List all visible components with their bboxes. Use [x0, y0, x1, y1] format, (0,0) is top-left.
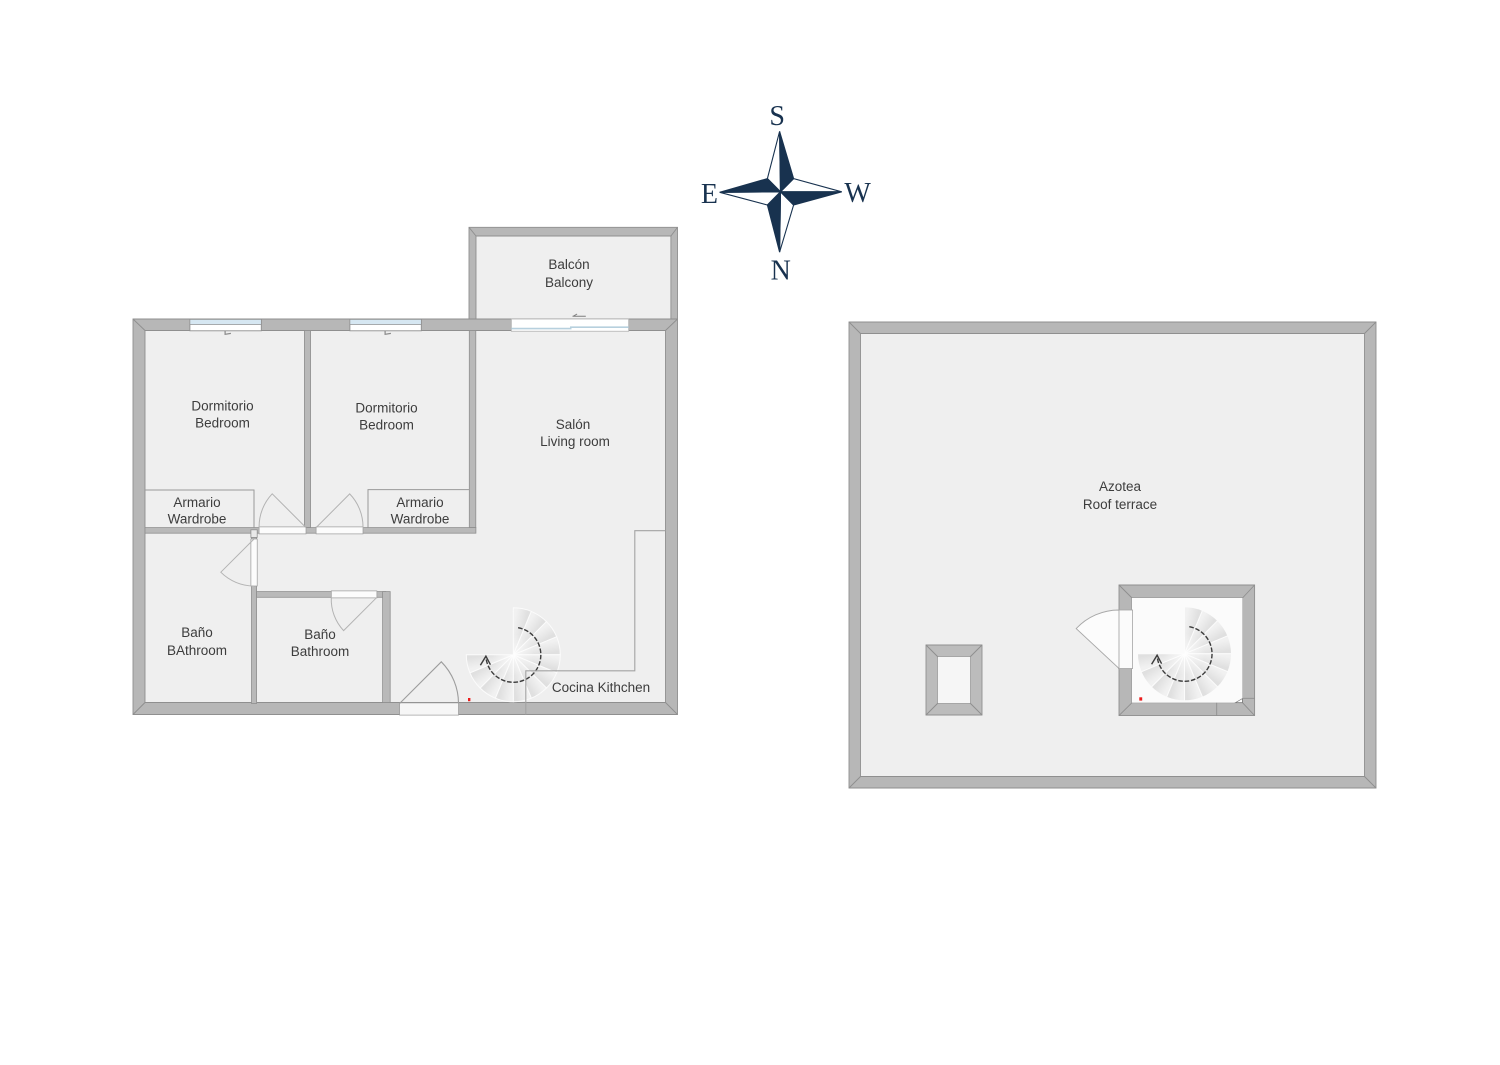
- svg-text:Salón: Salón: [556, 417, 591, 432]
- svg-text:N: N: [771, 255, 791, 286]
- svg-text:Armario: Armario: [173, 495, 220, 510]
- svg-text:Roof terrace: Roof terrace: [1083, 497, 1157, 512]
- svg-text:Baño: Baño: [304, 627, 336, 642]
- svg-text:Bathroom: Bathroom: [291, 644, 350, 659]
- svg-text:S: S: [769, 101, 785, 132]
- svg-text:W: W: [844, 178, 871, 209]
- svg-text:Wardrobe: Wardrobe: [391, 512, 450, 527]
- svg-text:Bedroom: Bedroom: [359, 418, 414, 433]
- svg-text:Bedroom: Bedroom: [195, 416, 250, 431]
- svg-text:Balcony: Balcony: [545, 275, 593, 290]
- svg-text:Balcón: Balcón: [548, 257, 589, 272]
- svg-text:Dormitorio: Dormitorio: [355, 401, 417, 416]
- svg-text:Baño: Baño: [181, 625, 213, 640]
- svg-text:Living room: Living room: [540, 434, 610, 449]
- svg-text:Dormitorio: Dormitorio: [191, 399, 253, 414]
- svg-text:Armario: Armario: [396, 495, 443, 510]
- svg-text:Cocina Kithchen: Cocina Kithchen: [552, 680, 650, 695]
- svg-text:BAthroom: BAthroom: [167, 643, 227, 658]
- svg-text:Wardrobe: Wardrobe: [168, 512, 227, 527]
- svg-text:E: E: [701, 179, 718, 210]
- svg-text:Azotea: Azotea: [1099, 479, 1142, 494]
